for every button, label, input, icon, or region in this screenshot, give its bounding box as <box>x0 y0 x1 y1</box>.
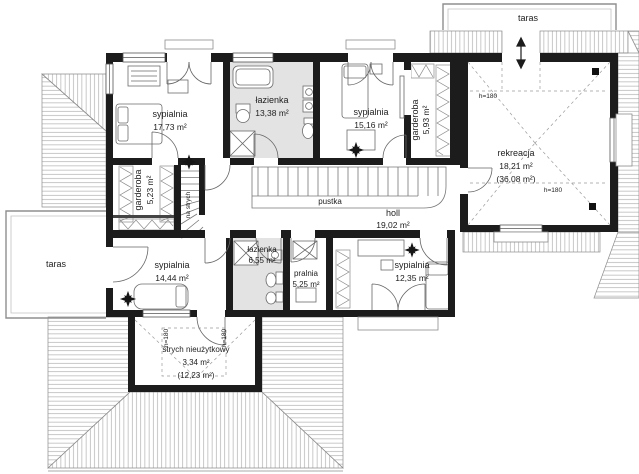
label-sypialnia-nw: sypialnia <box>152 109 187 119</box>
area-pralnia: 5,25 m² <box>292 280 319 289</box>
area-strych: 3,34 m² <box>182 358 209 367</box>
pillow <box>428 264 448 275</box>
washbasin-bowl <box>306 103 313 110</box>
area-garderoba-w: 5,23 m² <box>145 175 155 204</box>
area-holl: 19,02 m² <box>376 220 410 230</box>
window <box>106 64 113 94</box>
sliding-door <box>400 76 404 118</box>
toilet <box>266 273 276 287</box>
pillow <box>176 286 186 307</box>
label-garderoba-w: garderoba <box>133 169 143 210</box>
window <box>123 53 165 62</box>
area-lazienka-dol: 6,55 m² <box>248 256 275 265</box>
door <box>205 165 230 190</box>
pillow <box>118 125 128 141</box>
bathtub-inner <box>236 69 270 85</box>
area-total-rekreacja: (36,08 m²) <box>496 174 535 184</box>
label-h180: h=180 <box>544 187 563 194</box>
area-sypialnia-sw: 14,44 m² <box>155 273 189 283</box>
label-sypialnia-se: sypialnia <box>394 260 429 270</box>
washbasin-bowl <box>306 89 313 96</box>
vent-star-icon <box>181 154 196 169</box>
laundry-basket <box>296 288 316 302</box>
window <box>233 53 273 62</box>
area-total-strych: (12,23 m²) <box>178 371 215 380</box>
label-lazienka-dol: łazienka <box>247 245 277 254</box>
area-rekreacja: 18,21 m² <box>499 161 533 171</box>
pillow <box>118 107 128 123</box>
roof-posts <box>589 68 599 210</box>
desk <box>347 130 375 150</box>
french-door <box>372 284 398 310</box>
pillow <box>344 66 366 78</box>
area-garderoba-e: 5,93 m² <box>421 105 431 134</box>
toilet-tank <box>304 118 314 124</box>
bidet <box>266 292 276 304</box>
chair <box>381 260 393 270</box>
toilet <box>303 124 314 139</box>
desk <box>358 240 404 256</box>
label-h180: h=180 <box>221 328 228 347</box>
area-sypialnia-n: 15,16 m² <box>354 120 388 130</box>
vent-star-icon <box>404 242 419 257</box>
terrace-door <box>113 247 148 282</box>
label-strych: strych nieużytkowy <box>162 345 229 354</box>
label-h180: h=180 <box>479 93 498 100</box>
area-sypialnia-nw: 17,73 m² <box>153 122 187 132</box>
side-table <box>168 80 188 93</box>
label-pralnia: pralnia <box>294 269 319 278</box>
toilet-tank <box>276 272 283 284</box>
area-lazienka-top: 13,38 m² <box>255 108 289 118</box>
roof-areas <box>42 31 639 471</box>
label-taras-left: taras <box>46 259 67 269</box>
sink-pedestal <box>237 110 250 123</box>
label-sypialnia-n: sypialnia <box>353 107 388 117</box>
french-door <box>398 284 425 310</box>
door <box>383 135 406 158</box>
label-h180: h=180 <box>163 328 170 347</box>
main-staircase <box>252 167 446 208</box>
bidet-tank <box>276 292 283 302</box>
area-sypialnia-se: 12,35 m² <box>395 273 429 283</box>
label-pustka: pustka <box>318 197 342 206</box>
window <box>143 310 190 317</box>
french-door <box>189 62 211 84</box>
label-sypialnia-sw: sypialnia <box>154 260 189 270</box>
label-lazienka-top: łazienka <box>255 95 288 105</box>
label-na-strych: na strych <box>185 191 192 218</box>
label-taras-top: taras <box>518 13 539 23</box>
floor-plan: taras taras sypialnia 17,73 m² łazienka … <box>0 0 639 474</box>
label-garderoba-e: garderoba <box>410 99 420 140</box>
label-rekreacja: rekreacja <box>497 148 534 158</box>
door <box>468 168 492 192</box>
window <box>500 225 542 232</box>
label-holl: holl <box>386 208 400 218</box>
